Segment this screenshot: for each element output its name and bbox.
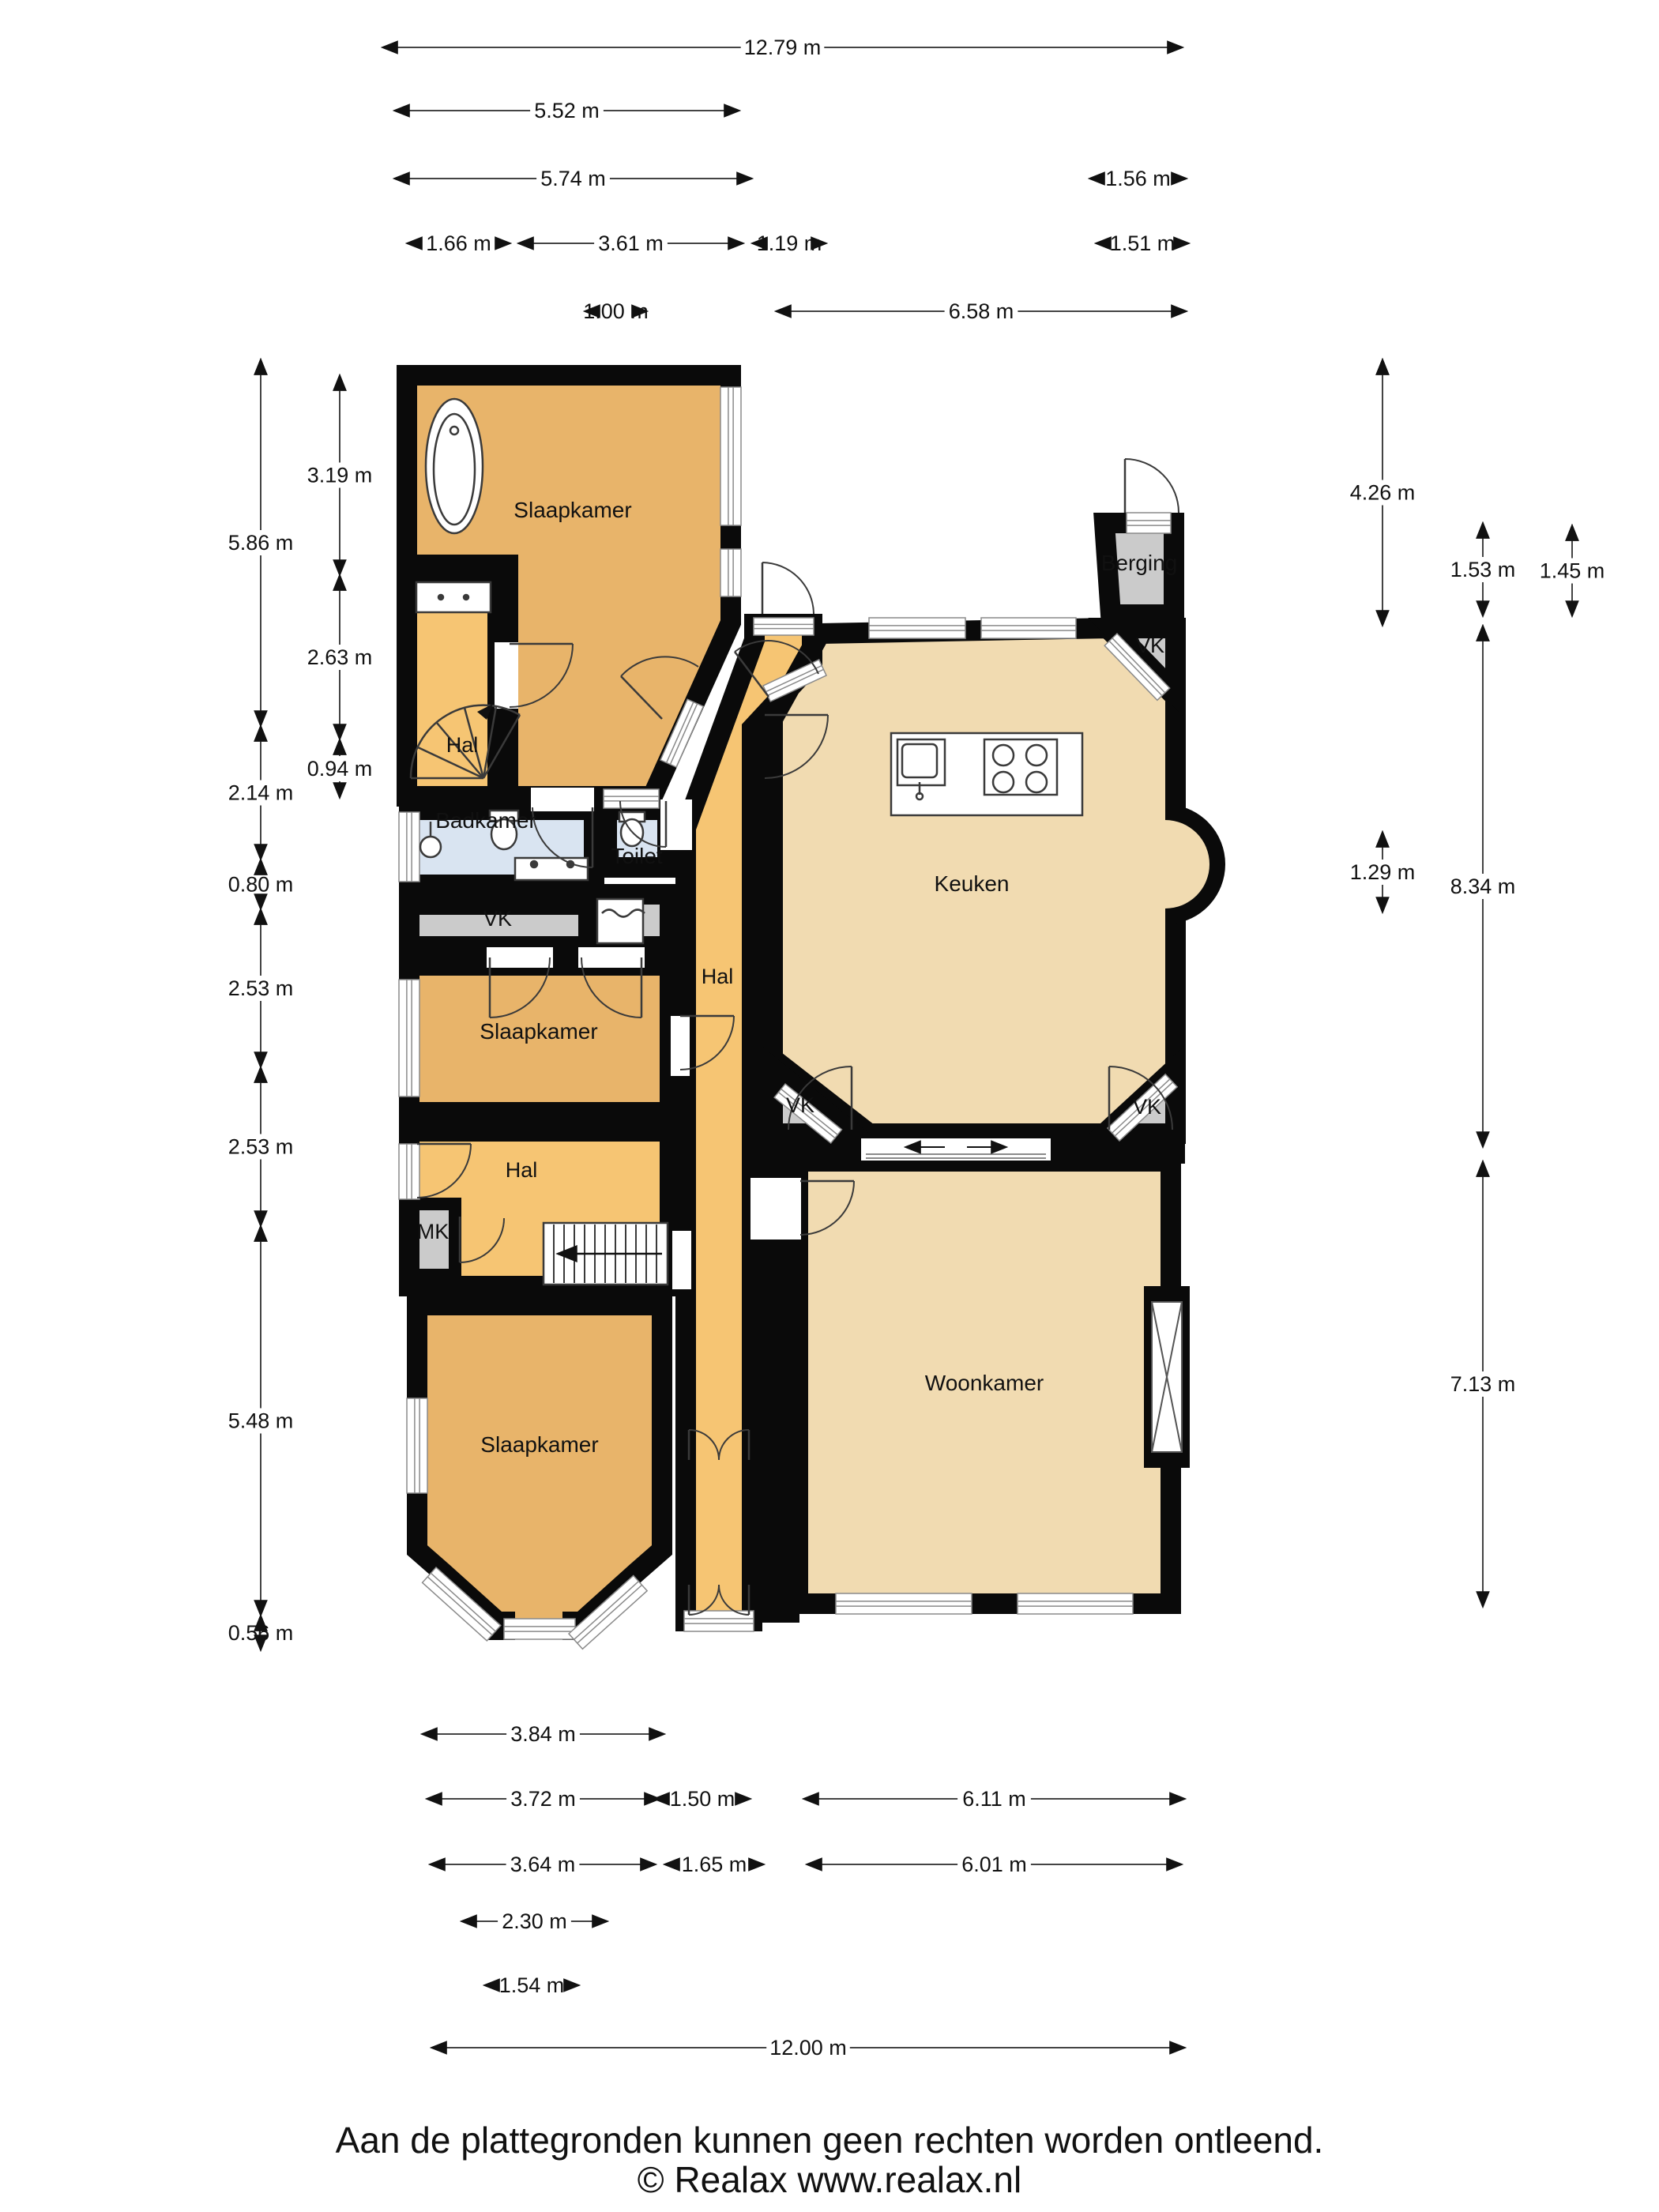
dim-1-54-label: 1.54 m <box>499 1973 565 1997</box>
dim-0-80: 0.80 m <box>228 860 294 909</box>
washing-machine <box>597 899 643 943</box>
window-hal-lower-left-door <box>399 1144 419 1199</box>
dim-1-00-label: 1.00 m <box>583 299 649 323</box>
dim-8-34-label: 8.34 m <box>1450 875 1516 898</box>
window-woonkamer-bottom-a-frame <box>836 1593 972 1614</box>
window-badkamer-left-frame <box>399 812 419 882</box>
opening-corridor-woonkamer <box>750 1178 801 1240</box>
room-hal-spiral <box>407 585 498 796</box>
room-vk-left-label: VK <box>483 907 512 931</box>
dim-5-86-label: 5.86 m <box>228 531 294 555</box>
dim-2-30-label: 2.30 m <box>502 1909 567 1933</box>
dim-1-45: 1.45 m <box>1540 525 1605 616</box>
window-berging-door-opening <box>1127 513 1171 533</box>
window-woonkamer-bottom-a <box>836 1593 972 1614</box>
dim-1-54: 1.54 m <box>484 1973 579 1997</box>
room-berging-label: Berging <box>1101 551 1178 575</box>
window-keuken-top-a-frame <box>869 618 965 638</box>
dim-2-53-a: 2.53 m <box>228 909 294 1067</box>
room-slaapkamer-mid-label: Slaapkamer <box>480 1019 597 1044</box>
window-porch-sill <box>754 618 814 635</box>
dim-5-86: 5.86 m <box>228 359 294 726</box>
room-hal-lower-label: Hal <box>506 1158 538 1182</box>
dim-2-63-label: 2.63 m <box>307 645 373 669</box>
dim-3-84: 3.84 m <box>422 1722 664 1746</box>
window-slaapkamer-mid-left-frame <box>399 980 419 1097</box>
room-hal-spiral-label: Hal <box>446 733 479 757</box>
dim-6-01: 6.01 m <box>807 1853 1182 1876</box>
window-badkamer-left <box>399 812 419 882</box>
dim-0-56-label: 0.56 m <box>228 1621 294 1645</box>
window-slaapkamer-mid-left <box>399 980 419 1097</box>
dresser-knob-b <box>464 595 468 600</box>
dim-1-66-label: 1.66 m <box>426 231 491 255</box>
window-slaapkamer-bottom-left <box>407 1398 427 1493</box>
sliding-door-keuken-woonkamer <box>861 1138 1051 1161</box>
window-slaapkamer-top-right-b-frame <box>720 549 741 596</box>
window-woonkamer-bottom-b-frame <box>1018 1593 1133 1614</box>
dim-5-74: 5.74 m <box>394 167 752 190</box>
window-berging-door-opening-frame <box>1127 513 1171 533</box>
dim-2-53-a-label: 2.53 m <box>228 976 294 1000</box>
dim-2-14: 2.14 m <box>228 726 294 860</box>
dim-5-48: 5.48 m <box>228 1226 294 1616</box>
dim-1-56: 1.56 m <box>1089 167 1187 190</box>
dim-3-64-label: 3.64 m <box>510 1853 576 1876</box>
dim-1-53: 1.53 m <box>1450 523 1516 616</box>
door-entrance-porch-swing <box>762 562 814 614</box>
dim-4-26-label: 4.26 m <box>1350 481 1416 505</box>
dim-6-01-label: 6.01 m <box>961 1853 1027 1876</box>
dim-7-13: 7.13 m <box>1450 1161 1516 1607</box>
opening-hal-bedroom <box>495 642 518 709</box>
dim-2-53-b-label: 2.53 m <box>228 1135 294 1159</box>
dim-1-53-label: 1.53 m <box>1450 558 1516 581</box>
room-woonkamer-label: Woonkamer <box>925 1371 1044 1395</box>
dim-3-61-label: 3.61 m <box>598 231 664 255</box>
dim-2-63: 2.63 m <box>307 575 373 739</box>
dim-5-52-label: 5.52 m <box>534 99 600 122</box>
room-vk-bottom-right-label: VK <box>1133 1095 1161 1119</box>
dim-1-45-label: 1.45 m <box>1540 559 1605 583</box>
opening-bedroom-badkamer <box>531 788 594 811</box>
room-hal-corridor-label: Hal <box>702 965 734 988</box>
sliding-door-keuken-woonkamer-opening <box>861 1138 1051 1161</box>
dim-8-34: 8.34 m <box>1450 626 1516 1147</box>
dim-12-00-label: 12.00 m <box>769 2036 847 2060</box>
dim-3-19: 3.19 m <box>307 375 373 575</box>
dim-3-61: 3.61 m <box>518 231 743 255</box>
badkamer-sink <box>515 858 588 880</box>
room-vk-bottom-left-label: VK <box>786 1093 814 1117</box>
dim-3-84-label: 3.84 m <box>510 1722 576 1746</box>
dim-3-72: 3.72 m <box>427 1787 660 1811</box>
door-entrance-porch <box>762 562 814 614</box>
dim-1-19-label: 1.19 m <box>757 231 822 255</box>
dim-5-52: 5.52 m <box>394 99 739 122</box>
dim-2-14-label: 2.14 m <box>228 781 294 805</box>
dim-0-94-label: 0.94 m <box>307 757 373 781</box>
door-berging-swing <box>1125 459 1179 513</box>
dim-5-74-label: 5.74 m <box>540 167 606 190</box>
room-slaapkamer-bottom-label: Slaapkamer <box>480 1432 598 1457</box>
room-toilet-label: Toilet <box>611 844 663 868</box>
badkamer-shower-head <box>420 837 441 857</box>
dim-1-56-label: 1.56 m <box>1105 167 1171 190</box>
door-berging <box>1125 459 1179 513</box>
dim-6-58: 6.58 m <box>776 299 1187 323</box>
window-slaapkamer-bottom-left-frame <box>407 1398 427 1493</box>
dim-12-79-label: 12.79 m <box>744 36 822 59</box>
dim-2-53-b: 2.53 m <box>228 1067 294 1226</box>
dim-12-00: 12.00 m <box>431 2036 1185 2060</box>
window-hal-lower-left-door-frame <box>399 1144 419 1199</box>
dim-1-65: 1.65 m <box>664 1853 764 1876</box>
footer-copyright: © Realax www.realax.nl <box>0 2158 1659 2201</box>
window-keuken-top-b <box>981 618 1076 638</box>
dim-7-13-label: 7.13 m <box>1450 1372 1516 1396</box>
floorplan-page: SlaapkamerHalBadkamerToiletVKSlaapkamerH… <box>0 0 1659 2212</box>
dim-0-56: 0.56 m <box>228 1616 294 1650</box>
dim-6-11-label: 6.11 m <box>962 1787 1026 1811</box>
window-keuken-top-b-frame <box>981 618 1076 638</box>
window-toilet-top-frame <box>604 789 659 808</box>
dim-1-51-label: 1.51 m <box>1110 231 1176 255</box>
dim-4-26: 4.26 m <box>1350 359 1416 626</box>
dim-1-51: 1.51 m <box>1096 231 1189 255</box>
dim-3-19-label: 3.19 m <box>307 464 373 487</box>
window-woonkamer-bottom-b <box>1018 1593 1133 1614</box>
dim-1-29: 1.29 m <box>1350 832 1416 912</box>
dim-1-66: 1.66 m <box>407 231 510 255</box>
window-bay-bottom-frame <box>504 1619 575 1639</box>
window-slaapkamer-top-right-b <box>720 549 741 596</box>
dim-0-80-label: 0.80 m <box>228 873 294 897</box>
window-slaapkamer-top-right-a <box>720 387 741 525</box>
badkamer-tap-a <box>531 861 537 867</box>
dim-12-79: 12.79 m <box>382 36 1183 59</box>
dim-3-72-label: 3.72 m <box>510 1787 576 1811</box>
window-slaapkamer-top-right-a-frame <box>720 387 741 525</box>
dresser-knob-a <box>438 595 443 600</box>
dim-5-48-label: 5.48 m <box>228 1409 294 1433</box>
room-slaapkamer-top-label: Slaapkamer <box>513 498 631 522</box>
dim-1-50-label: 1.50 m <box>670 1787 735 1811</box>
dim-2-30: 2.30 m <box>461 1909 608 1933</box>
room-vk-ne-label: VK <box>1136 634 1164 657</box>
opening-hal-lower-corridor <box>672 1231 691 1289</box>
woonkamer-x-glass <box>1152 1302 1182 1452</box>
dim-6-11: 6.11 m <box>803 1787 1185 1811</box>
dim-1-65-label: 1.65 m <box>682 1853 747 1876</box>
floorplan-svg: SlaapkamerHalBadkamerToiletVKSlaapkamerH… <box>0 0 1659 2212</box>
dim-0-94: 0.94 m <box>307 739 373 798</box>
dim-1-00: 1.00 m <box>583 299 649 323</box>
room-keuken-label: Keuken <box>935 871 1010 896</box>
dresser <box>416 582 491 612</box>
window-bay-bottom <box>504 1619 575 1639</box>
dim-1-29-label: 1.29 m <box>1350 860 1416 884</box>
dim-3-64: 3.64 m <box>430 1853 656 1876</box>
room-mk-label: MK <box>417 1220 450 1243</box>
footer-disclaimer: Aan de plattegronden kunnen geen rechten… <box>0 2119 1659 2161</box>
opening-midbed-corridor <box>671 1016 690 1076</box>
room-badkamer-label: Badkamer <box>435 808 536 833</box>
window-porch-sill-frame <box>754 618 814 635</box>
window-keuken-top-a <box>869 618 965 638</box>
dim-6-58-label: 6.58 m <box>949 299 1014 323</box>
opening-midbed-b <box>578 947 645 968</box>
dim-1-19: 1.19 m <box>752 231 826 255</box>
dim-1-50: 1.50 m <box>654 1787 750 1811</box>
window-toilet-top <box>604 789 659 808</box>
opening-midbed-a <box>487 947 553 968</box>
